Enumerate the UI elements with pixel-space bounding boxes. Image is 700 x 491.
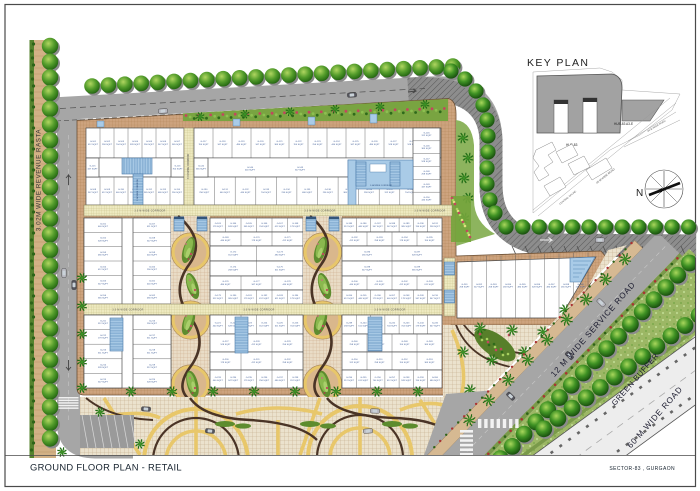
svg-text:258 SQFT: 258 SQFT <box>374 362 385 364</box>
svg-text:480 SQFT: 480 SQFT <box>302 192 313 194</box>
svg-text:704 SQFT: 704 SQFT <box>198 144 209 146</box>
svg-text:528 SQFT: 528 SQFT <box>130 144 141 146</box>
svg-text:312 SQFT: 312 SQFT <box>421 135 432 137</box>
svg-text:312 SQFT: 312 SQFT <box>259 325 270 327</box>
svg-text:3.0M WIDE CORRIDOR: 3.0M WIDE CORRIDOR <box>370 185 392 187</box>
svg-text:480 SQFT: 480 SQFT <box>147 298 158 300</box>
svg-text:258 SQFT: 258 SQFT <box>421 174 432 176</box>
svg-text:611 SQFT: 611 SQFT <box>358 380 369 382</box>
svg-text:312 SQFT: 312 SQFT <box>344 380 355 382</box>
svg-text:312 SQFT: 312 SQFT <box>147 367 158 369</box>
svg-text:440 SQFT: 440 SQFT <box>147 255 158 257</box>
svg-text:480 SQFT: 480 SQFT <box>220 284 231 286</box>
svg-text:412 SQFT: 412 SQFT <box>98 269 109 271</box>
svg-text:365 SQFT: 365 SQFT <box>244 226 255 228</box>
svg-text:258 SQFT: 258 SQFT <box>282 362 293 364</box>
svg-text:347 SQFT: 347 SQFT <box>387 226 398 228</box>
svg-text:480 SQFT: 480 SQFT <box>275 254 286 256</box>
svg-text:365 SQFT: 365 SQFT <box>424 344 435 346</box>
svg-text:258 SQFT: 258 SQFT <box>488 287 499 289</box>
svg-text:347 SQFT: 347 SQFT <box>430 325 441 327</box>
svg-text:704 SQFT: 704 SQFT <box>172 168 183 170</box>
svg-text:528 SQFT: 528 SQFT <box>220 344 231 346</box>
svg-text:312 SQFT: 312 SQFT <box>290 380 301 382</box>
svg-text:480 SQFT: 480 SQFT <box>517 287 528 289</box>
svg-text:440 SQFT: 440 SQFT <box>282 284 293 286</box>
svg-text:611 SQFT: 611 SQFT <box>425 284 436 286</box>
svg-text:347 SQFT: 347 SQFT <box>251 284 262 286</box>
svg-text:440 SQFT: 440 SQFT <box>147 283 158 285</box>
svg-text:312 SQFT: 312 SQFT <box>98 323 109 325</box>
svg-text:365 SQFT: 365 SQFT <box>196 168 207 170</box>
svg-text:704 SQFT: 704 SQFT <box>116 144 127 146</box>
svg-text:KEY PLAN: KEY PLAN <box>527 57 589 69</box>
svg-text:256 SQFT: 256 SQFT <box>282 192 293 194</box>
svg-text:179 SQFT: 179 SQFT <box>251 240 262 242</box>
svg-text:347 SQFT: 347 SQFT <box>98 283 109 285</box>
svg-text:365 SQFT: 365 SQFT <box>412 269 423 271</box>
svg-text:365 SQFT: 365 SQFT <box>424 362 435 364</box>
svg-text:3.0 M WIDE CORRIDOR: 3.0 M WIDE CORRIDOR <box>304 211 335 213</box>
svg-text:312 SQFT: 312 SQFT <box>384 192 395 194</box>
svg-text:704 SQFT: 704 SQFT <box>416 380 427 382</box>
svg-text:179 SQFT: 179 SQFT <box>575 287 586 289</box>
svg-text:3.0 M WIDE CORRIDOR: 3.0 M WIDE CORRIDOR <box>188 153 190 179</box>
svg-text:256 SQFT: 256 SQFT <box>144 144 155 146</box>
svg-text:704 SQFT: 704 SQFT <box>290 325 301 327</box>
svg-text:412 SQFT: 412 SQFT <box>374 284 385 286</box>
svg-text:312 SQFT: 312 SQFT <box>349 362 360 364</box>
svg-text:3.0 M WIDE CORRIDOR: 3.0 M WIDE CORRIDOR <box>112 310 143 312</box>
svg-text:412 SQFT: 412 SQFT <box>349 240 360 242</box>
svg-text:412 SQFT: 412 SQFT <box>251 344 262 346</box>
svg-text:480 SQFT: 480 SQFT <box>430 380 441 382</box>
svg-text:179 SQFT: 179 SQFT <box>373 298 384 300</box>
svg-text:179 SQFT: 179 SQFT <box>98 338 109 340</box>
svg-text:611 SQFT: 611 SQFT <box>147 352 158 354</box>
svg-text:347 SQFT: 347 SQFT <box>416 298 427 300</box>
svg-text:GROUND FLOOR PLAN - RETAIL: GROUND FLOOR PLAN - RETAIL <box>30 462 182 473</box>
svg-text:256 SQFT: 256 SQFT <box>147 269 158 271</box>
svg-text:611 SQFT: 611 SQFT <box>358 325 369 327</box>
svg-text:480 SQFT: 480 SQFT <box>275 380 286 382</box>
svg-text:480 SQFT: 480 SQFT <box>98 255 109 257</box>
svg-text:440 SQFT: 440 SQFT <box>349 284 360 286</box>
svg-text:179 SQFT: 179 SQFT <box>220 362 231 364</box>
svg-text:412 SQFT: 412 SQFT <box>282 240 293 242</box>
svg-text:440 SQFT: 440 SQFT <box>116 192 127 194</box>
svg-text:440 SQFT: 440 SQFT <box>220 192 231 194</box>
svg-text:365 SQFT: 365 SQFT <box>144 192 155 194</box>
svg-text:256 SQFT: 256 SQFT <box>323 192 334 194</box>
svg-text:347 SQFT: 347 SQFT <box>295 170 306 172</box>
svg-text:256 SQFT: 256 SQFT <box>561 287 572 289</box>
svg-text:256 SQFT: 256 SQFT <box>199 192 210 194</box>
svg-text:440 SQFT: 440 SQFT <box>331 144 342 146</box>
svg-text:179 SQFT: 179 SQFT <box>290 298 301 300</box>
svg-text:HUB-83 A3-E: HUB-83 A3-E <box>614 122 633 126</box>
svg-text:179 SQFT: 179 SQFT <box>399 240 410 242</box>
svg-text:440 SQFT: 440 SQFT <box>387 298 398 300</box>
svg-text:365 SQFT: 365 SQFT <box>228 298 239 300</box>
svg-text:3.0 M WIDE CORRIDOR: 3.0 M WIDE CORRIDOR <box>134 211 165 213</box>
svg-text:611 SQFT: 611 SQFT <box>275 325 286 327</box>
svg-text:440 SQFT: 440 SQFT <box>421 199 432 201</box>
svg-text:412 SQFT: 412 SQFT <box>399 284 410 286</box>
svg-text:347 SQFT: 347 SQFT <box>147 240 158 242</box>
svg-text:347 SQFT: 347 SQFT <box>158 144 169 146</box>
svg-text:412 SQFT: 412 SQFT <box>102 192 113 194</box>
svg-text:704 SQFT: 704 SQFT <box>261 192 272 194</box>
svg-text:179 SQFT: 179 SQFT <box>244 298 255 300</box>
svg-text:528 SQFT: 528 SQFT <box>401 380 412 382</box>
svg-text:179 SQFT: 179 SQFT <box>416 325 427 327</box>
svg-text:347 SQFT: 347 SQFT <box>87 168 98 170</box>
svg-text:528 SQFT: 528 SQFT <box>532 287 543 289</box>
svg-text:704 SQFT: 704 SQFT <box>259 226 270 228</box>
svg-text:528 SQFT: 528 SQFT <box>98 367 109 369</box>
svg-text:704 SQFT: 704 SQFT <box>293 144 304 146</box>
svg-text:256 SQFT: 256 SQFT <box>147 323 158 325</box>
svg-text:258 SQFT: 258 SQFT <box>503 287 514 289</box>
svg-text:347 SQFT: 347 SQFT <box>373 226 384 228</box>
svg-text:179 SQFT: 179 SQFT <box>290 226 301 228</box>
svg-text:440 SQFT: 440 SQFT <box>245 170 256 172</box>
svg-text:412 SQFT: 412 SQFT <box>88 144 99 146</box>
svg-text:256 SQFT: 256 SQFT <box>362 254 373 256</box>
svg-text:528 SQFT: 528 SQFT <box>147 382 158 384</box>
svg-text:3.0 M WIDE CORRIDOR: 3.0 M WIDE CORRIDOR <box>374 310 405 312</box>
svg-text:256 SQFT: 256 SQFT <box>312 144 323 146</box>
svg-text:256 SQFT: 256 SQFT <box>259 380 270 382</box>
svg-text:440 SQFT: 440 SQFT <box>358 226 369 228</box>
svg-text:365 SQFT: 365 SQFT <box>98 298 109 300</box>
svg-text:480 SQFT: 480 SQFT <box>369 144 380 146</box>
svg-text:480 SQFT: 480 SQFT <box>236 144 247 146</box>
svg-text:312 SQFT: 312 SQFT <box>228 254 239 256</box>
svg-text:440 SQFT: 440 SQFT <box>98 226 109 228</box>
svg-text:347 SQFT: 347 SQFT <box>421 187 432 189</box>
svg-text:611 SQFT: 611 SQFT <box>147 338 158 340</box>
svg-text:440 SQFT: 440 SQFT <box>358 298 369 300</box>
svg-text:SECTOR-83 , GURGAON: SECTOR-83 , GURGAON <box>609 466 675 472</box>
svg-text:611 SQFT: 611 SQFT <box>275 298 286 300</box>
svg-text:528 SQFT: 528 SQFT <box>98 240 109 242</box>
svg-text:179 SQFT: 179 SQFT <box>244 380 255 382</box>
svg-text:704 SQFT: 704 SQFT <box>373 380 384 382</box>
svg-text:440 SQFT: 440 SQFT <box>220 240 231 242</box>
svg-text:365 SQFT: 365 SQFT <box>421 148 432 150</box>
svg-text:256 SQFT: 256 SQFT <box>282 344 293 346</box>
svg-text:611 SQFT: 611 SQFT <box>275 269 286 271</box>
svg-text:347 SQFT: 347 SQFT <box>217 144 228 146</box>
svg-text:258 SQFT: 258 SQFT <box>459 287 470 289</box>
svg-text:347 SQFT: 347 SQFT <box>228 380 239 382</box>
svg-text:3.0M WIDE CORRIDOR: 3.0M WIDE CORRIDOR <box>137 179 139 201</box>
svg-text:412 SQFT: 412 SQFT <box>344 298 355 300</box>
svg-text:258 SQFT: 258 SQFT <box>344 325 355 327</box>
svg-text:704 SQFT: 704 SQFT <box>399 362 410 364</box>
svg-text:258 SQFT: 258 SQFT <box>349 344 360 346</box>
svg-text:365 SQFT: 365 SQFT <box>172 144 183 146</box>
svg-text:347 SQFT: 347 SQFT <box>430 298 441 300</box>
svg-text:3.02M WIDE REVENUE RASTA: 3.02M WIDE REVENUE RASTA <box>36 129 43 231</box>
svg-text:704 SQFT: 704 SQFT <box>399 344 410 346</box>
svg-text:3.0 M WIDE CORRIDOR: 3.0 M WIDE CORRIDOR <box>414 211 445 213</box>
svg-text:528 SQFT: 528 SQFT <box>388 144 399 146</box>
svg-text:704 SQFT: 704 SQFT <box>387 325 398 327</box>
svg-text:258 SQFT: 258 SQFT <box>374 240 385 242</box>
svg-text:528 SQFT: 528 SQFT <box>228 226 239 228</box>
svg-text:347 SQFT: 347 SQFT <box>362 269 373 271</box>
svg-text:347 SQFT: 347 SQFT <box>474 287 485 289</box>
svg-text:347 SQFT: 347 SQFT <box>350 144 361 146</box>
svg-text:312 SQFT: 312 SQFT <box>344 226 355 228</box>
svg-text:440 SQFT: 440 SQFT <box>213 325 224 327</box>
svg-text:258 SQFT: 258 SQFT <box>102 144 113 146</box>
svg-text:528 SQFT: 528 SQFT <box>412 254 423 256</box>
svg-text:412 SQFT: 412 SQFT <box>251 362 262 364</box>
svg-text:480 SQFT: 480 SQFT <box>546 287 557 289</box>
svg-text:611 SQFT: 611 SQFT <box>147 226 158 228</box>
svg-text:347 SQFT: 347 SQFT <box>98 382 109 384</box>
svg-text:256 SQFT: 256 SQFT <box>172 192 183 194</box>
svg-text:704 SQFT: 704 SQFT <box>424 240 435 242</box>
svg-text:704 SQFT: 704 SQFT <box>401 325 412 327</box>
svg-text:179 SQFT: 179 SQFT <box>401 298 412 300</box>
svg-text:179 SQFT: 179 SQFT <box>213 226 224 228</box>
svg-text:347 SQFT: 347 SQFT <box>255 144 266 146</box>
svg-text:480 SQFT: 480 SQFT <box>158 192 169 194</box>
svg-text:258 SQFT: 258 SQFT <box>364 192 375 194</box>
svg-text:347 SQFT: 347 SQFT <box>88 192 99 194</box>
svg-text:365 SQFT: 365 SQFT <box>274 144 285 146</box>
svg-text:258 SQFT: 258 SQFT <box>430 226 441 228</box>
svg-text:412 SQFT: 412 SQFT <box>259 298 270 300</box>
svg-text:528 SQFT: 528 SQFT <box>421 161 432 163</box>
svg-text:3.0 M WIDE CORRIDOR: 3.0 M WIDE CORRIDOR <box>243 310 274 312</box>
svg-text:258 SQFT: 258 SQFT <box>228 269 239 271</box>
svg-text:N: N <box>636 188 643 199</box>
svg-text:440 SQFT: 440 SQFT <box>240 192 251 194</box>
svg-text:412 SQFT: 412 SQFT <box>275 226 286 228</box>
svg-text:704 SQFT: 704 SQFT <box>416 226 427 228</box>
svg-text:412 SQFT: 412 SQFT <box>387 380 398 382</box>
svg-text:312 SQFT: 312 SQFT <box>213 298 224 300</box>
svg-text:365 SQFT: 365 SQFT <box>401 226 412 228</box>
svg-text:440 SQFT: 440 SQFT <box>213 380 224 382</box>
svg-text:611 SQFT: 611 SQFT <box>98 352 109 354</box>
